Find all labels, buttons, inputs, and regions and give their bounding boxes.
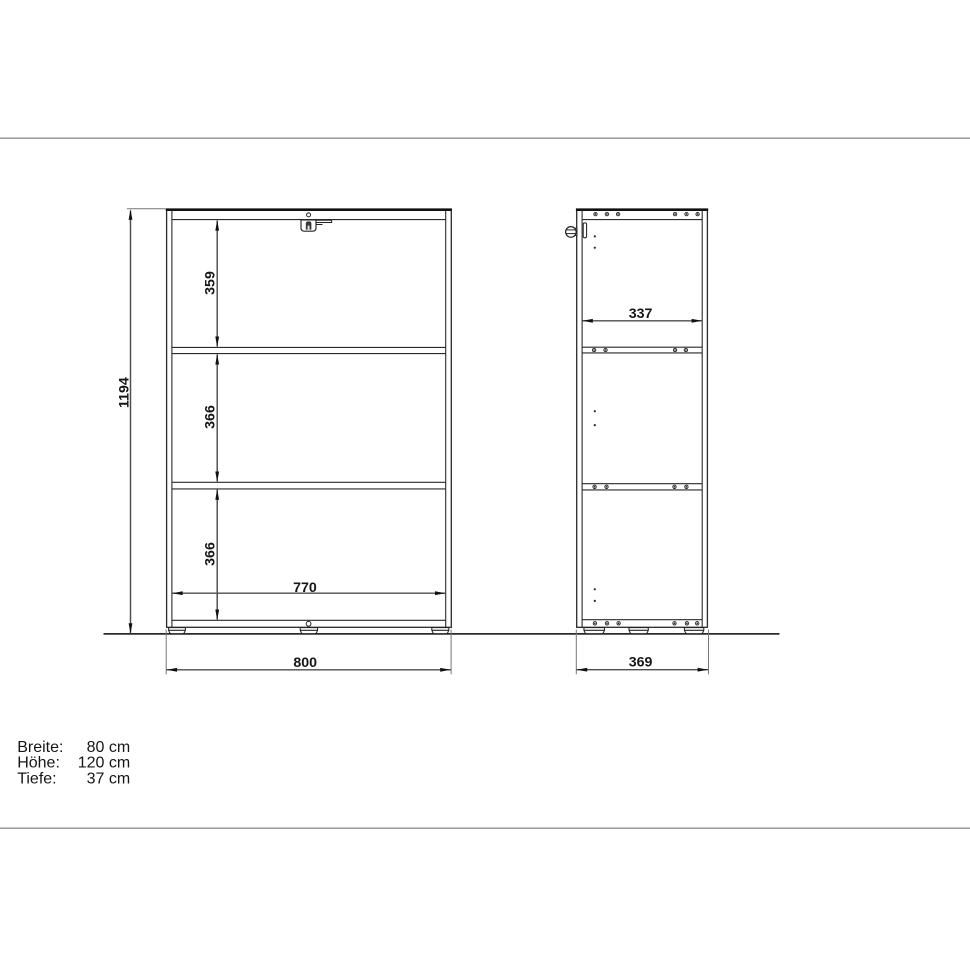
svg-text:800: 800 — [293, 655, 317, 671]
svg-text:Breite:: Breite: — [17, 739, 63, 756]
svg-text:366: 366 — [202, 405, 218, 429]
svg-text:cm: cm — [109, 755, 130, 772]
svg-text:770: 770 — [293, 580, 317, 596]
svg-text:Höhe:: Höhe: — [17, 755, 60, 772]
svg-text:337: 337 — [629, 306, 653, 322]
svg-text:369: 369 — [629, 655, 653, 671]
svg-text:cm: cm — [109, 739, 130, 756]
svg-text:1194: 1194 — [117, 377, 133, 408]
svg-text:80: 80 — [87, 739, 105, 756]
svg-text:366: 366 — [202, 542, 218, 566]
svg-text:37: 37 — [87, 770, 105, 787]
svg-text:120: 120 — [78, 755, 105, 772]
svg-text:359: 359 — [202, 271, 218, 295]
svg-text:cm: cm — [109, 770, 130, 787]
svg-text:Tiefe:: Tiefe: — [17, 770, 56, 787]
